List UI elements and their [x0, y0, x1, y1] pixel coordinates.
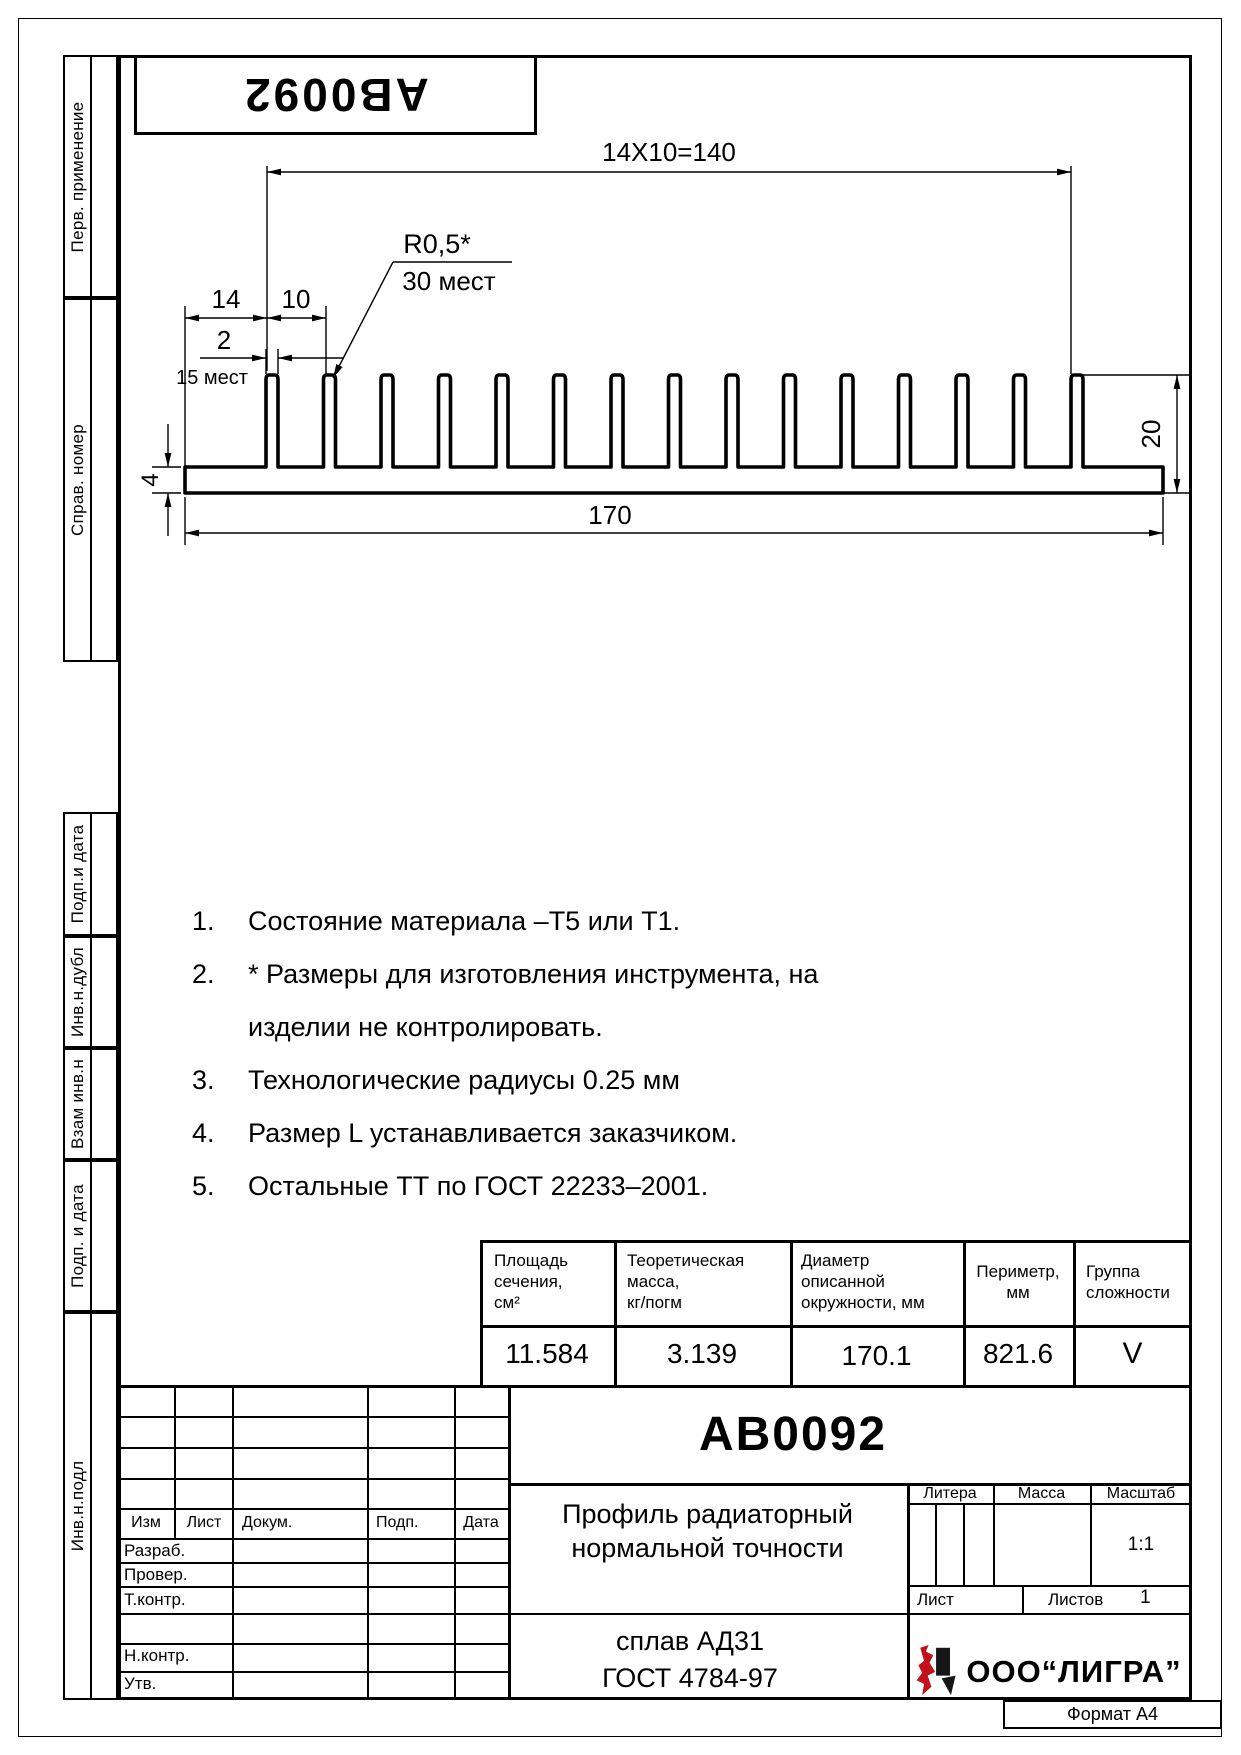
- format-label: Формат А4: [1005, 1702, 1220, 1727]
- margin-label: Справ. номер: [68, 424, 88, 536]
- rule: [480, 1325, 1192, 1328]
- format-box: Формат А4: [1003, 1700, 1222, 1729]
- margin-box-inv-dubl: Инв.н.дубл: [63, 936, 118, 1048]
- margin-box-podp-data-1: Подп.и дата: [63, 812, 118, 936]
- note-number: 4.: [192, 1118, 215, 1149]
- param-value-diameter: 170.1: [790, 1340, 963, 1372]
- note-text: Состояние материала –Т5 или Т1.: [248, 906, 680, 937]
- margin-label: Перв. применение: [68, 101, 88, 252]
- sig-label-utv: Утв.: [124, 1674, 156, 1694]
- rule: [118, 1562, 508, 1564]
- param-header-perimeter: Периметр, мм: [963, 1261, 1073, 1303]
- litera-label: Литера: [907, 1485, 993, 1503]
- margin-box-inv-podl: Инв.н.подл: [63, 1312, 118, 1700]
- margin-label: Подп.и дата: [68, 825, 88, 924]
- dim-pitch-label: 10: [282, 284, 311, 314]
- drawing-sheet: { "stamp": { "code": "АВ0092" }, "margin…: [0, 0, 1241, 1755]
- margin-box-sprav-nomer: Справ. номер: [63, 298, 118, 662]
- rule: [454, 1385, 456, 1700]
- note-text: * Размеры для изготовления инструмента, …: [248, 959, 818, 990]
- profile-outline: [185, 375, 1163, 493]
- dim-height-label: 20: [1136, 420, 1166, 449]
- stamp-code: АВ0092: [242, 68, 429, 122]
- note-text: Технологические радиусы 0.25 мм: [248, 1065, 680, 1096]
- note-text: Остальные ТТ по ГОСТ 22233–2001.: [248, 1171, 708, 1202]
- margin-divider: [90, 938, 92, 1046]
- profile-drawing: 14X10=140 R0,5* 30 мест 14 10 2 15 мест …: [118, 135, 1192, 565]
- dim-fin-width-label: 2: [217, 325, 231, 355]
- rule: [118, 1478, 508, 1480]
- sig-label-tkontr: Т.контр.: [124, 1590, 186, 1610]
- margin-label: Инв.н.дубл: [68, 947, 88, 1037]
- margin-divider: [90, 1162, 92, 1310]
- dim-base-thickness-label: 4: [137, 473, 164, 486]
- note-text: Размер L устанавливается заказчиком.: [248, 1118, 737, 1149]
- sig-label-nkontr: Н.контр.: [124, 1646, 189, 1666]
- margin-box-podp-data-2: Подп. и дата: [63, 1160, 118, 1312]
- rev-header-podp: Подп.: [376, 1514, 419, 1532]
- param-header-diameter: Диаметр описанной окружности, мм: [801, 1250, 925, 1313]
- rule: [118, 1385, 1192, 1388]
- doc-code: АВ0092: [508, 1400, 1078, 1470]
- margin-box-vzam-inv: Взам инв.н: [63, 1048, 118, 1160]
- rule: [118, 1671, 508, 1673]
- rule: [907, 1503, 1192, 1505]
- dim-radius-label: R0,5*: [403, 229, 471, 259]
- param-value-area: 11.584: [480, 1338, 614, 1370]
- sheet-label: Лист: [917, 1590, 954, 1610]
- rule: [232, 1385, 234, 1700]
- param-header-mass: Теоретическая масса, кг/погм: [627, 1250, 744, 1313]
- rev-header-list: Лист: [176, 1514, 232, 1532]
- rule: [935, 1503, 937, 1585]
- sig-label-razrab: Разраб.: [124, 1541, 185, 1561]
- rule: [118, 1613, 1192, 1615]
- rule: [118, 1643, 508, 1645]
- note-text: изделии не контролировать.: [248, 1012, 603, 1043]
- rule: [118, 1586, 508, 1588]
- dim-width-label: 170: [588, 500, 631, 530]
- margin-divider: [90, 814, 92, 934]
- rule: [118, 1416, 508, 1418]
- sheets-value: 1: [1140, 1587, 1151, 1609]
- material: сплав АД31 ГОСТ 4784-97: [508, 1623, 872, 1697]
- scale-label: Масштаб: [1090, 1485, 1192, 1503]
- top-stamp-box: АВ0092: [134, 55, 537, 135]
- company-name: ООО“ЛИГРА”: [960, 1650, 1188, 1694]
- dim-fin-places-label: 15 мест: [176, 367, 248, 389]
- margin-divider: [90, 1314, 92, 1698]
- dim-pitch-total-label: 14X10=140: [602, 137, 736, 167]
- note-number: 1.: [192, 906, 215, 937]
- margin-label: Инв.н.подл: [68, 1461, 88, 1552]
- param-value-group: V: [1073, 1337, 1192, 1371]
- rule: [907, 1483, 910, 1700]
- rule: [367, 1385, 369, 1700]
- param-header-area: Площадь сечения, см²: [494, 1250, 568, 1313]
- dim-radius-places-label: 30 мест: [402, 266, 495, 296]
- margin-divider: [90, 300, 92, 660]
- sheets-label: Листов: [1048, 1590, 1103, 1610]
- rev-header-izm: Изм: [118, 1514, 174, 1532]
- param-value-mass: 3.139: [614, 1338, 790, 1370]
- rule: [963, 1503, 965, 1585]
- ligra-logo: [913, 1645, 961, 1697]
- mass-label: Масса: [993, 1485, 1090, 1503]
- rev-header-data: Дата: [454, 1514, 508, 1532]
- sig-label-prover: Провер.: [124, 1565, 188, 1585]
- margin-box-perv-primenenie: Перв. применение: [63, 55, 118, 298]
- scale-value: 1:1: [1090, 1534, 1192, 1556]
- rule: [118, 1508, 508, 1510]
- dim-edge-offset-label: 14: [212, 284, 241, 314]
- part-name: Профиль радиаторный нормальной точности: [508, 1497, 907, 1565]
- rev-header-dokum: Докум.: [242, 1514, 292, 1532]
- note-number: 2.: [192, 959, 215, 990]
- note-number: 3.: [192, 1065, 215, 1096]
- param-value-perimeter: 821.6: [963, 1338, 1073, 1370]
- rule: [118, 1447, 508, 1449]
- margin-label: Взам инв.н: [68, 1059, 88, 1149]
- margin-label: Подп. и дата: [68, 1184, 88, 1288]
- rule: [118, 1538, 508, 1540]
- margin-divider: [90, 57, 92, 296]
- param-header-group: Группа сложности: [1086, 1261, 1170, 1303]
- rule: [480, 1240, 1192, 1243]
- note-number: 5.: [192, 1171, 215, 1202]
- margin-divider: [90, 1050, 92, 1158]
- rule: [1022, 1585, 1024, 1613]
